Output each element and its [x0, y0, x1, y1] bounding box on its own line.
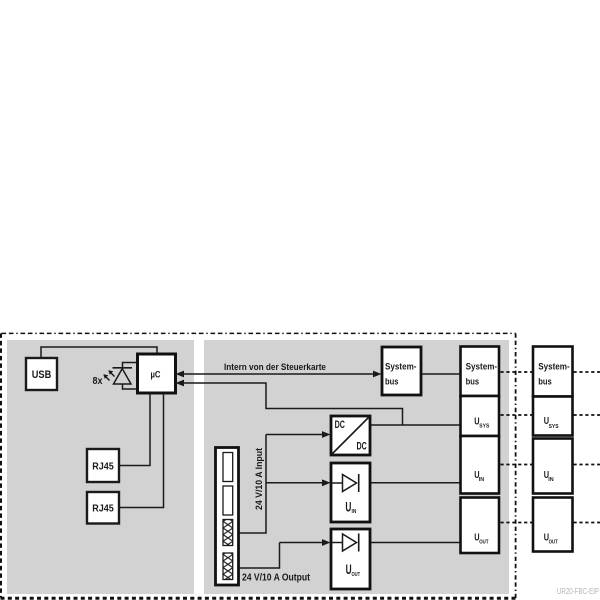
svg-text:System-: System-	[466, 361, 498, 372]
svg-text:DC: DC	[335, 419, 345, 431]
svg-text:µC: µC	[151, 369, 161, 379]
svg-text:bus: bus	[385, 377, 399, 388]
svg-text:24 V/10 A Output: 24 V/10 A Output	[242, 573, 311, 584]
svg-text:bus: bus	[538, 377, 552, 388]
svg-text:OUT: OUT	[479, 540, 488, 546]
svg-text:System-: System-	[385, 361, 417, 372]
svg-text:DC: DC	[357, 441, 367, 453]
svg-text:SYS: SYS	[479, 424, 490, 430]
svg-text:IN: IN	[548, 477, 554, 483]
svg-text:bus: bus	[466, 377, 480, 388]
svg-text:24 V/10 A Input: 24 V/10 A Input	[254, 447, 265, 510]
svg-text:OUT: OUT	[549, 540, 558, 546]
svg-text:Intern von der Steuerkarte: Intern von der Steuerkarte	[224, 362, 326, 372]
svg-text:OUT: OUT	[352, 572, 361, 578]
svg-text:RJ45: RJ45	[92, 462, 114, 473]
svg-text:IN: IN	[479, 477, 485, 483]
svg-text:UR20-FBC-EIP: UR20-FBC-EIP	[557, 587, 599, 596]
svg-text:RJ45: RJ45	[92, 504, 114, 515]
svg-text:SYS: SYS	[549, 424, 560, 430]
svg-text:8x: 8x	[93, 376, 103, 387]
svg-text:IN: IN	[352, 509, 357, 515]
svg-text:System-: System-	[538, 361, 570, 372]
svg-text:U: U	[345, 500, 351, 515]
svg-text:USB: USB	[32, 369, 52, 381]
